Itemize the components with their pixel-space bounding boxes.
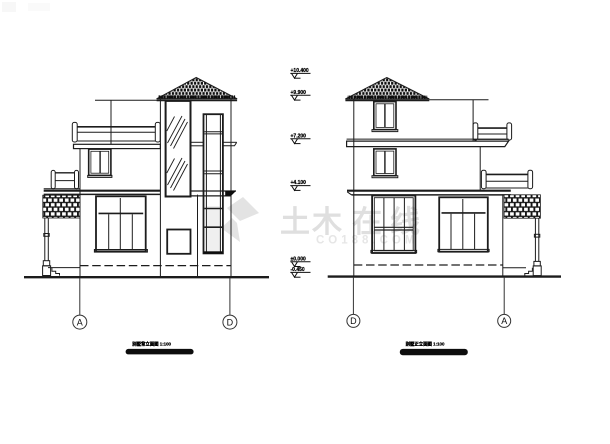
svg-text:别墅背立面图 1:100: 别墅背立面图 1:100	[131, 341, 171, 348]
svg-text:A: A	[77, 317, 83, 327]
svg-text:土: 土	[280, 206, 310, 239]
svg-text:别墅正立面图 1:100: 别墅正立面图 1:100	[405, 340, 445, 347]
svg-text:+4.100: +4.100	[291, 180, 307, 186]
svg-text:A: A	[501, 316, 507, 326]
svg-text:D: D	[227, 317, 234, 327]
svg-text:CO188.COM: CO188.COM	[316, 235, 418, 247]
svg-text:+10.400: +10.400	[291, 68, 309, 74]
svg-text:+9.900: +9.900	[291, 90, 307, 96]
svg-text:D: D	[350, 316, 357, 326]
svg-text:±0.000: ±0.000	[291, 256, 306, 262]
svg-text:+7.200: +7.200	[291, 133, 307, 139]
svg-text:-0.450: -0.450	[291, 267, 305, 273]
